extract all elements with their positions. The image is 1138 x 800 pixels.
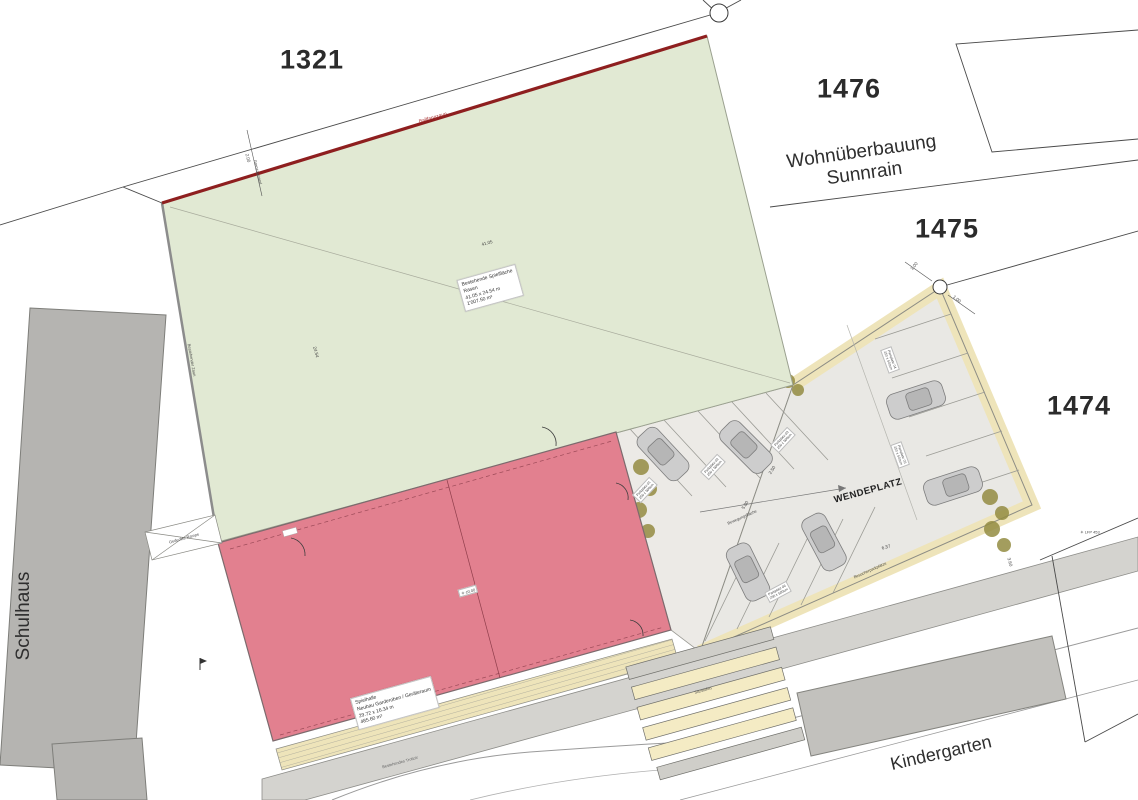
parcel-number-1321: 1321 xyxy=(280,45,344,76)
schulhaus-annex xyxy=(52,738,147,800)
boundary-point-circle xyxy=(710,4,728,22)
parcel-number-1475: 1475 xyxy=(915,214,979,245)
survey-marker-icon xyxy=(200,658,207,670)
street-curb-line-2 xyxy=(470,770,660,800)
fixpoint-marker: ✳ LFP 453 xyxy=(1080,530,1100,535)
schulhaus-label: Schulhaus xyxy=(13,572,35,661)
parcel-number-1474: 1474 xyxy=(1047,391,1111,422)
boundary-point-circle xyxy=(933,280,947,294)
site-plan: 1321 1476 1475 1474 Wohnüberbauung Sunnr… xyxy=(0,0,1138,800)
schulhaus-building xyxy=(0,308,166,772)
parcel-number-1476: 1476 xyxy=(817,74,881,105)
site-plan-drawing xyxy=(0,0,1138,800)
